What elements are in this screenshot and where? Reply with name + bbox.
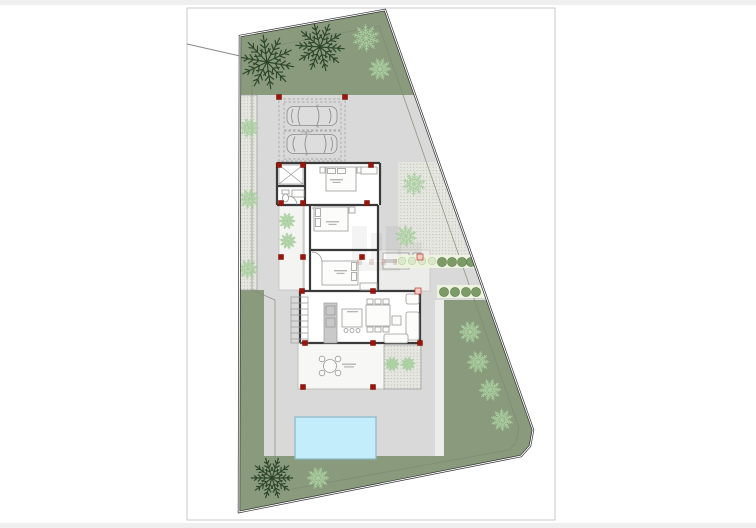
structural-column: [369, 163, 374, 168]
structural-column: [300, 289, 305, 294]
structural-column: [277, 95, 282, 100]
terrace: [298, 343, 385, 389]
hedge-bush: [408, 257, 416, 265]
structural-column: [418, 341, 423, 346]
swimming-pool: [295, 417, 376, 459]
hedge-bush: [461, 287, 470, 296]
structural-column: [371, 385, 376, 390]
car: [287, 105, 337, 128]
car: [287, 133, 337, 156]
structural-column: [417, 254, 423, 260]
viewer-top-edge: [0, 0, 756, 5]
structural-column: [279, 201, 284, 206]
structural-column: [415, 288, 421, 294]
side-path-strip: [435, 300, 444, 456]
structural-column: [371, 289, 376, 294]
hedge-bush: [428, 257, 436, 265]
hedge-bush: [398, 257, 406, 265]
structural-column: [360, 255, 365, 260]
garden-left-strip: [239, 290, 264, 460]
hedge-bush: [471, 287, 480, 296]
structural-column: [343, 95, 348, 100]
dining-set: [366, 299, 390, 332]
carport: [279, 99, 345, 161]
viewer-bottom-edge: [0, 523, 756, 528]
structural-column: [277, 163, 282, 168]
structural-column: [301, 163, 306, 168]
structural-column: [371, 341, 376, 346]
site-plan-drawing: [0, 0, 756, 528]
hedge-bush: [450, 287, 459, 296]
hedge-bush: [437, 257, 446, 266]
hedge-bush: [447, 257, 456, 266]
hedge-bush: [457, 257, 466, 266]
structural-column: [365, 201, 370, 206]
structural-column: [301, 201, 306, 206]
structural-column: [303, 341, 308, 346]
structural-column: [301, 385, 306, 390]
hedge-bush: [439, 287, 448, 296]
structural-column: [279, 255, 284, 260]
terrace-table: [324, 360, 337, 373]
structural-column: [301, 255, 306, 260]
